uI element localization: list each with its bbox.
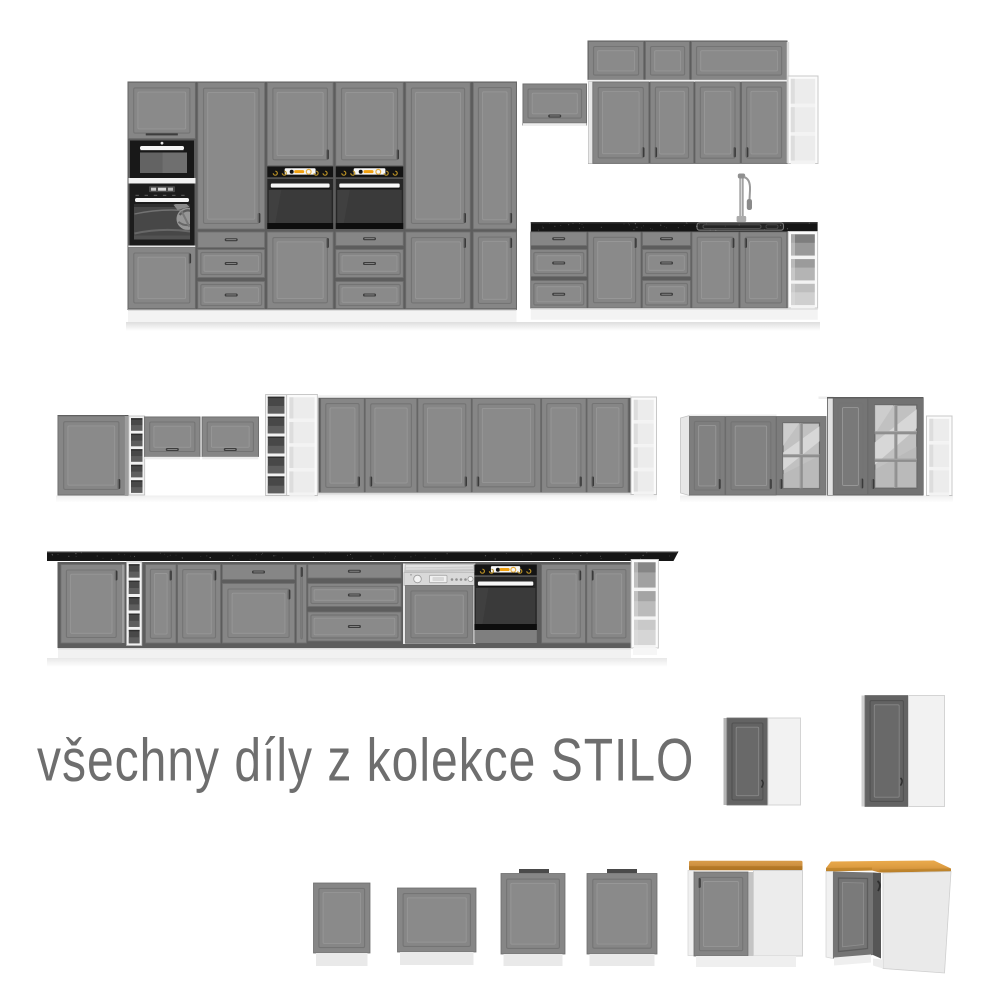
svg-text:všechny díly z kolekce STILO: všechny díly z kolekce STILO <box>37 726 694 794</box>
